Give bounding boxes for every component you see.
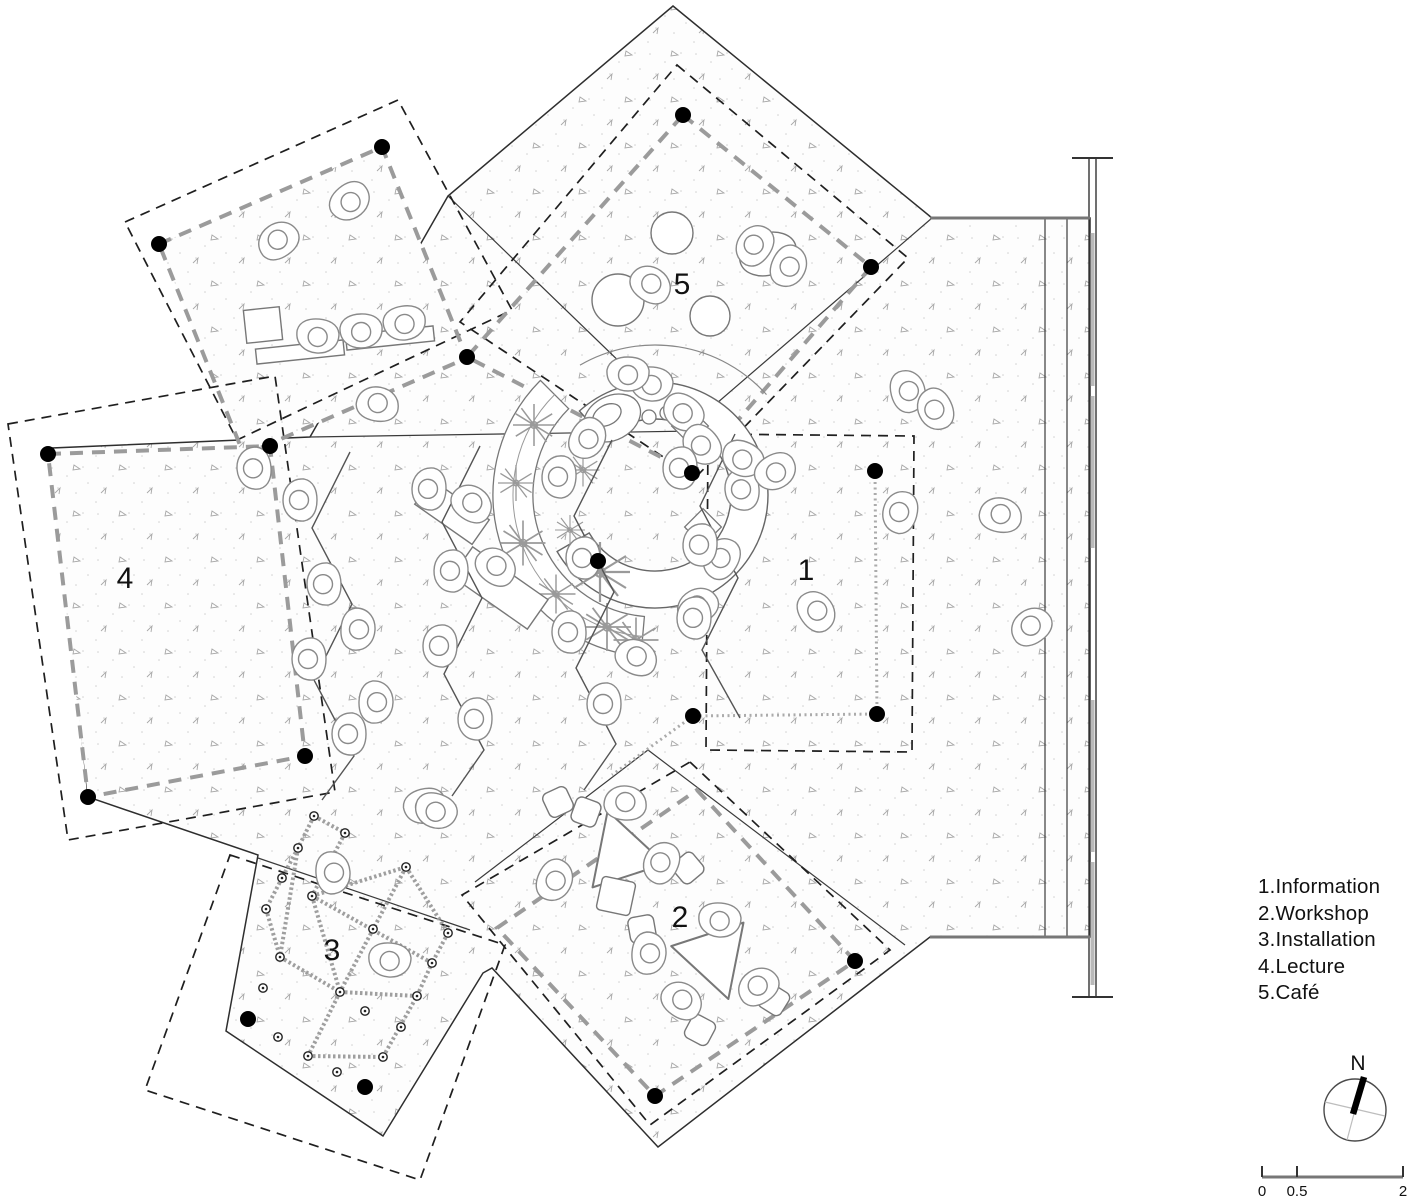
anchor-node-pin xyxy=(311,895,314,898)
column-dot xyxy=(151,236,167,252)
anchor-node-pin xyxy=(262,987,265,990)
anchor-node-pin xyxy=(416,995,419,998)
anchor-node-pin xyxy=(364,1010,367,1013)
column-dot xyxy=(459,349,475,365)
anchor-node-pin xyxy=(313,815,316,818)
floor-plan-drawing: 1 2 3 4 5 N 0 0.5 2 xyxy=(0,0,1413,1199)
anchor-node-pin xyxy=(265,908,268,911)
zone-label-workshop: 2 xyxy=(672,901,689,934)
compass-needle xyxy=(1353,1077,1364,1114)
person-figure xyxy=(283,479,317,521)
column-dot xyxy=(675,107,691,123)
north-label: N xyxy=(1350,1052,1365,1075)
person-figure xyxy=(607,357,649,391)
building-footprint xyxy=(48,6,1090,1147)
column-dot xyxy=(80,789,96,805)
anchor-node-pin xyxy=(336,1071,339,1074)
lecture-rug xyxy=(48,446,305,797)
legend-item-cafe: 5.Café xyxy=(1258,980,1380,1007)
zone-label-installation: 3 xyxy=(324,934,341,967)
legend: 1.Information 2.Workshop 3.Installation … xyxy=(1258,874,1380,1007)
column-dot xyxy=(685,708,701,724)
legend-item-installation: 3.Installation xyxy=(1258,927,1380,954)
glazing-panel xyxy=(1091,700,1095,852)
anchor-node-pin xyxy=(307,1055,310,1058)
workshop-square-table xyxy=(596,876,636,916)
column-dot xyxy=(863,259,879,275)
north-arrow: N xyxy=(1324,1052,1386,1141)
person-figure xyxy=(292,638,326,680)
scale-tick-05: 0.5 xyxy=(1287,1183,1308,1199)
column-dot xyxy=(357,1079,373,1095)
column-dot xyxy=(590,553,606,569)
anchor-node-pin xyxy=(447,932,450,935)
column-dot xyxy=(297,748,313,764)
anchor-node-pin xyxy=(344,832,347,835)
glazing-panels xyxy=(1091,233,1095,985)
column-dot xyxy=(867,463,883,479)
anchor-node-pin xyxy=(281,877,284,880)
legend-item-lecture: 4.Lecture xyxy=(1258,954,1380,981)
column-dot xyxy=(647,1088,663,1104)
zone-label-cafe: 5 xyxy=(674,268,691,301)
column-dot xyxy=(240,1011,256,1027)
glazing-panel xyxy=(1091,396,1095,548)
column-dot xyxy=(684,465,700,481)
anchor-node-pin xyxy=(431,962,434,965)
person-figure xyxy=(332,713,366,755)
column-dot xyxy=(40,446,56,462)
legend-item-workshop: 2.Workshop xyxy=(1258,901,1380,928)
person-figure xyxy=(587,683,621,725)
anchor-node-pin xyxy=(277,1036,280,1039)
glazing-panel xyxy=(1091,233,1095,386)
column-dot xyxy=(262,438,278,454)
anchor-node-pin xyxy=(372,928,375,931)
scale-tick-0: 0 xyxy=(1258,1183,1266,1199)
legend-item-information: 1.Information xyxy=(1258,874,1380,901)
anchor-node-pin xyxy=(400,1026,403,1029)
cafe-round-table xyxy=(690,296,730,336)
anchor-node-pin xyxy=(382,1056,385,1059)
zone-label-information: 1 xyxy=(798,554,815,587)
column-dot xyxy=(847,953,863,969)
anchor-node-pin xyxy=(405,866,408,869)
cafe-round-table xyxy=(651,212,693,254)
side-table xyxy=(243,307,282,344)
glazing-panel xyxy=(1091,862,1095,985)
zone-label-lecture: 4 xyxy=(117,562,134,595)
column-dot xyxy=(869,706,885,722)
anchor-node-pin xyxy=(279,956,282,959)
scale-tick-2: 2 xyxy=(1399,1183,1407,1199)
floor-plan-sheet: 1 2 3 4 5 N 0 0.5 2 1.Information 2.Work… xyxy=(0,0,1413,1199)
anchor-node-pin xyxy=(339,991,342,994)
scale-bar: 0 0.5 2 xyxy=(1258,1166,1407,1199)
anchor-node-pin xyxy=(297,847,300,850)
column-dot xyxy=(374,139,390,155)
